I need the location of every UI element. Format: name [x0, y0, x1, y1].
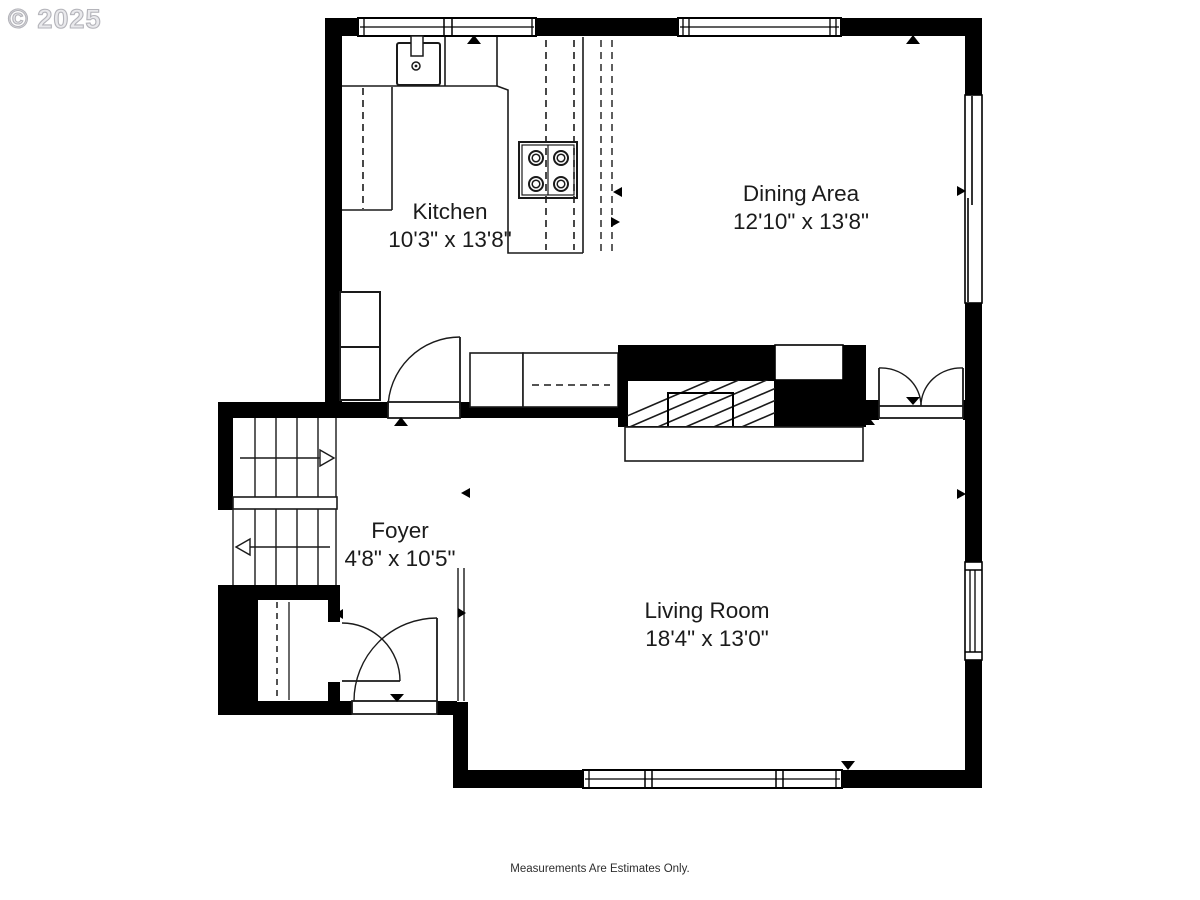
entry-door — [352, 618, 437, 714]
stair-arrow-up — [240, 450, 334, 466]
marker-up-dining-wall — [906, 35, 920, 44]
disclaimer-text: Measurements Are Estimates Only. — [510, 863, 689, 875]
floorplan-drawing — [0, 0, 1200, 900]
room-label-living-room: Living Room 18'4" x 13'0" — [644, 597, 769, 653]
refrigerator — [340, 292, 380, 400]
room-dimensions: 18'4" x 13'0" — [644, 625, 769, 653]
hearth — [625, 427, 863, 461]
marker-right-partition — [458, 608, 466, 618]
dining-side-window — [965, 95, 982, 303]
kitchen-wall-cabinets — [470, 353, 618, 407]
dining-window — [678, 18, 841, 36]
marker-left-foyer — [461, 488, 470, 498]
marker-down-french-door — [906, 397, 920, 405]
room-label-kitchen: Kitchen 10'3" x 13'8" — [388, 198, 511, 254]
room-label-dining-area: Dining Area 12'10" x 13'8" — [733, 180, 869, 236]
stair-arrow-down — [236, 539, 330, 555]
room-name: Dining Area — [733, 180, 869, 208]
room-label-foyer: Foyer 4'8" x 10'5" — [345, 517, 456, 573]
living-side-window — [965, 562, 982, 660]
room-dimensions: 4'8" x 10'5" — [345, 545, 456, 573]
floorplan-canvas: © 2025 — [0, 0, 1200, 900]
marker-left-ceiling-break — [613, 187, 622, 197]
stove — [519, 142, 577, 198]
room-dimensions: 12'10" x 13'8" — [733, 208, 869, 236]
room-name: Foyer — [345, 517, 456, 545]
french-doors — [879, 368, 963, 418]
sink — [397, 36, 440, 85]
kitchen-window — [358, 18, 536, 36]
room-name: Living Room — [644, 597, 769, 625]
marker-right-living-wall — [957, 489, 966, 499]
marker-right-ceiling-break — [611, 217, 620, 227]
living-bottom-window — [583, 770, 842, 788]
stairs — [233, 418, 337, 585]
ceiling-break-lines — [601, 40, 612, 251]
room-dimensions: 10'3" x 13'8" — [388, 226, 511, 254]
room-name: Kitchen — [388, 198, 511, 226]
closet — [277, 602, 289, 700]
stair-landing — [233, 497, 337, 509]
foyer-partition — [458, 568, 464, 701]
fireplace — [590, 345, 866, 461]
marker-down-bottom-wall — [841, 761, 855, 770]
kitchen-door — [388, 337, 460, 418]
